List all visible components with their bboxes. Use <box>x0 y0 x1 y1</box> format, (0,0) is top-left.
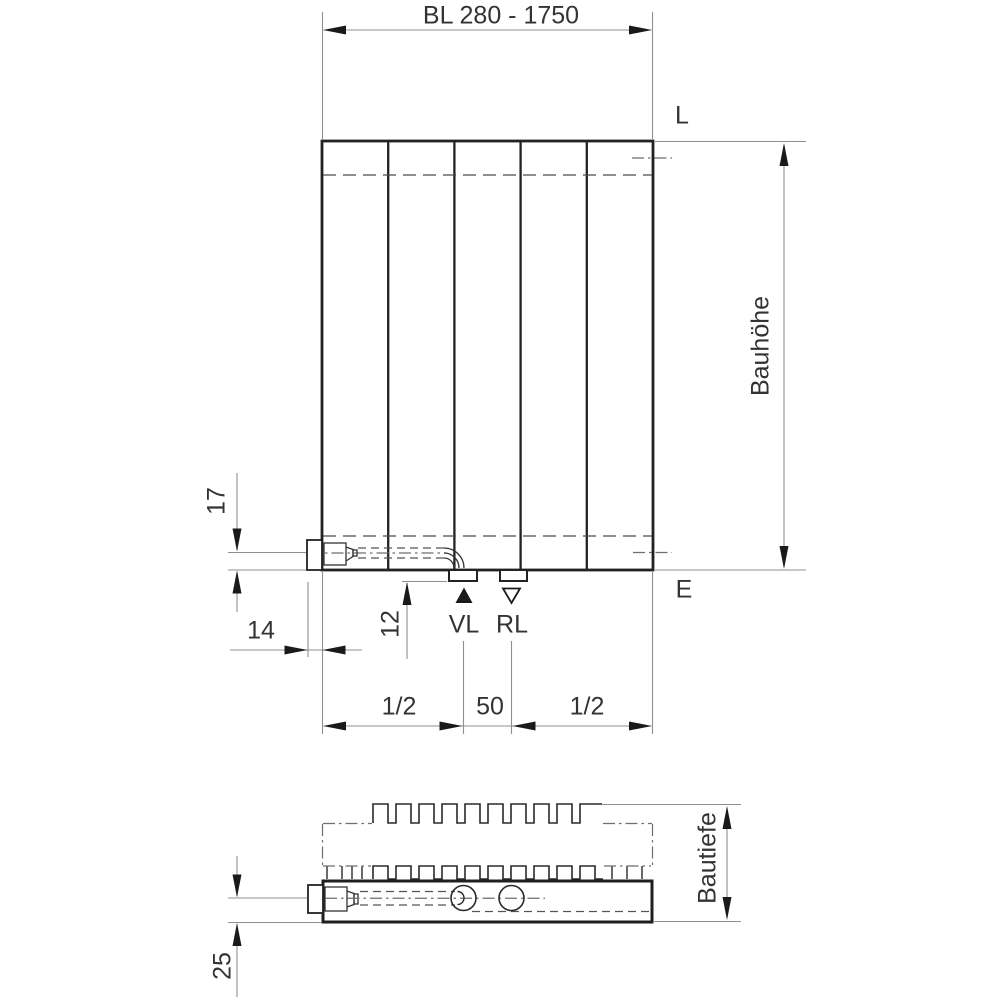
fin-row-top <box>373 804 602 823</box>
rl-stub <box>500 570 527 581</box>
panel-hidden-outline <box>323 824 653 867</box>
bautiefe-arrow-bottom <box>723 897 732 920</box>
bottom-level-label: E <box>676 578 693 603</box>
radiator-body <box>322 141 653 570</box>
top-level-label: L <box>675 104 689 129</box>
half-left-arrow-a <box>323 722 346 731</box>
rl-flow-triangle <box>503 589 520 604</box>
valve-axis-offset-label: 17 <box>205 487 230 515</box>
dim14-arrow-right <box>285 646 308 655</box>
dim17-arrow-up <box>233 571 242 594</box>
return-label: RL <box>496 613 528 638</box>
fin-row-bottom <box>373 866 603 879</box>
half-right-arrow-b <box>629 722 652 731</box>
dim12-arrow-up <box>403 582 412 605</box>
right-span-label: 1/2 <box>570 695 605 720</box>
drawing-svg <box>0 0 1000 1000</box>
height-dim-label: Bauhöhe <box>749 296 774 396</box>
vl-stub <box>449 570 477 581</box>
stub-height-label: 12 <box>379 610 404 638</box>
header-body <box>323 881 652 922</box>
bl-arrow-right <box>629 26 652 35</box>
dim17-arrow-down <box>233 529 242 552</box>
half-right-arrow-a <box>513 722 536 731</box>
bl-arrow-left <box>323 26 346 35</box>
valve-body-section <box>308 885 323 913</box>
dim14-arrow-left <box>323 646 346 655</box>
valve-protrusion-label: 14 <box>247 619 275 644</box>
valve-body <box>307 540 322 570</box>
front-view <box>307 141 672 603</box>
left-span-label: 1/2 <box>382 695 417 720</box>
center-span-label: 50 <box>476 695 504 720</box>
pipe-axis-offset-label: 25 <box>211 952 236 980</box>
dim25-arrow-up <box>233 923 242 946</box>
half-left-arrow-b <box>440 722 463 731</box>
bauhoehe-arrow-bottom <box>780 546 789 569</box>
supply-label: VL <box>449 613 480 638</box>
section-view <box>308 804 653 922</box>
bauhoehe-arrow-top <box>780 143 789 166</box>
depth-dim-label: Bautiefe <box>696 812 721 904</box>
vl-flow-triangle <box>456 588 473 604</box>
width-dim-label: BL 280 - 1750 <box>423 4 579 29</box>
dim25-arrow-down <box>233 875 242 898</box>
bautiefe-arrow-top <box>723 806 732 829</box>
technical-drawing-canvas: BL 280 - 1750 L E Bauhöhe 17 14 12 VL RL… <box>0 0 1000 1000</box>
